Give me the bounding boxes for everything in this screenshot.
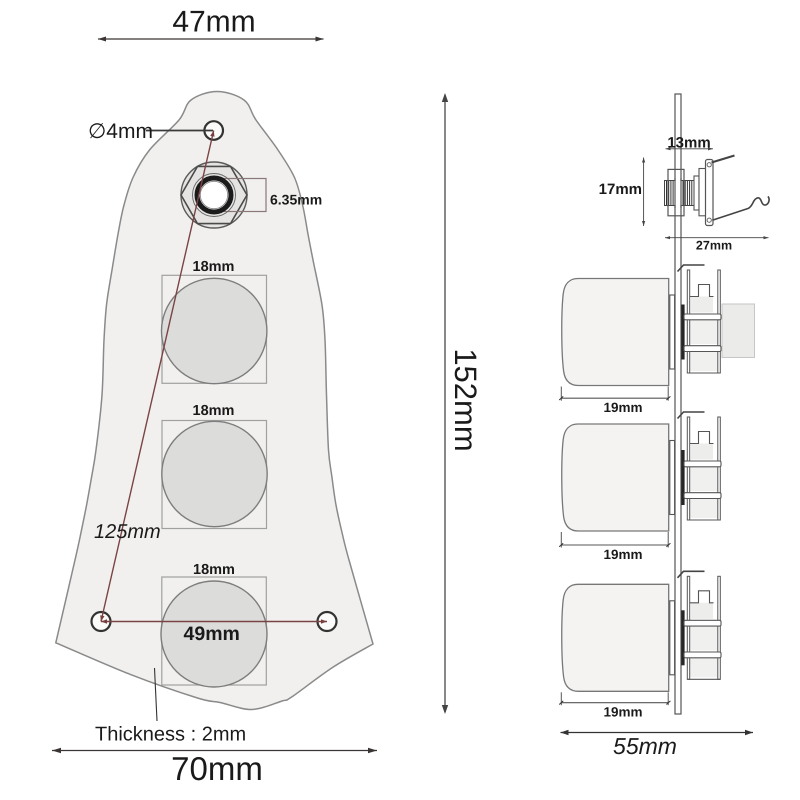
- svg-text:18mm: 18mm: [193, 562, 235, 578]
- svg-text:17mm: 17mm: [599, 181, 642, 198]
- svg-text:47mm: 47mm: [172, 6, 255, 39]
- svg-text:49mm: 49mm: [184, 623, 240, 645]
- svg-text:70mm: 70mm: [171, 750, 263, 787]
- svg-text:152mm: 152mm: [448, 348, 483, 451]
- svg-text:18mm: 18mm: [193, 259, 235, 275]
- svg-text:6.35mm: 6.35mm: [270, 192, 322, 208]
- svg-text:Thickness : 2mm: Thickness : 2mm: [95, 724, 246, 746]
- svg-text:18mm: 18mm: [193, 403, 235, 419]
- svg-text:19mm: 19mm: [603, 705, 642, 720]
- svg-text:∅4mm: ∅4mm: [88, 120, 153, 143]
- svg-text:19mm: 19mm: [603, 547, 642, 562]
- svg-text:55mm: 55mm: [613, 733, 677, 759]
- svg-text:27mm: 27mm: [696, 239, 732, 253]
- svg-text:19mm: 19mm: [603, 400, 642, 415]
- svg-text:125mm: 125mm: [94, 521, 161, 543]
